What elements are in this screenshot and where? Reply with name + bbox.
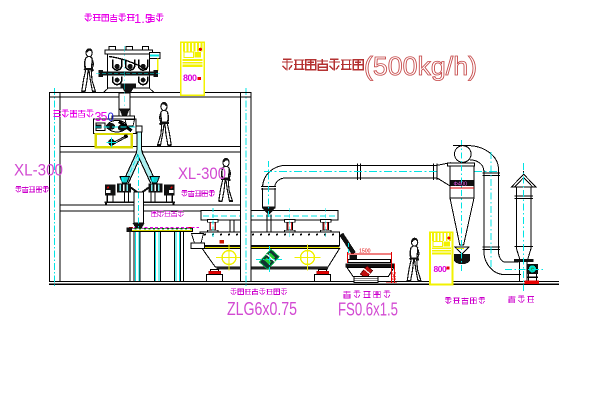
svg-text:0: 0: [108, 112, 114, 124]
svg-text:(500kg/h): (500kg/h): [364, 51, 477, 81]
svg-text:1500: 1500: [359, 249, 371, 255]
svg-text:800: 800: [434, 264, 447, 274]
svg-text:548: 548: [390, 272, 396, 281]
svg-text:FS0.6x1.5: FS0.6x1.5: [338, 300, 398, 320]
svg-text:800: 800: [183, 73, 197, 83]
svg-text:35: 35: [95, 110, 108, 124]
svg-text:XL-300: XL-300: [178, 164, 226, 183]
svg-text:1.5: 1.5: [134, 11, 152, 26]
svg-text:XL-300: XL-300: [14, 161, 63, 180]
svg-text:Φ400: Φ400: [454, 181, 468, 187]
svg-text:ZLG6x0.75: ZLG6x0.75: [227, 299, 297, 319]
